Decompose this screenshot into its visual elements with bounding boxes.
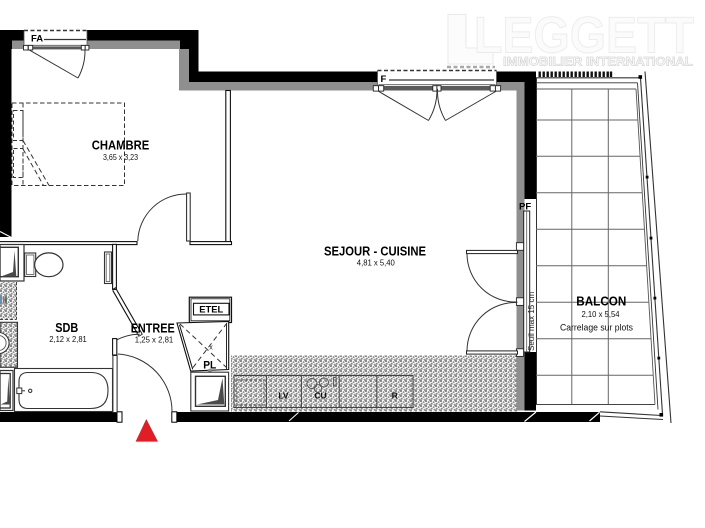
svg-text:ENTREE: ENTREE [131,322,175,336]
svg-text:LV: LV [278,391,289,401]
svg-text:x: x [209,345,213,352]
svg-text:CHAMBRE: CHAMBRE [92,139,150,153]
svg-text:Carrelage sur plots: Carrelage sur plots [560,323,634,333]
svg-text:3,65 x 3,23: 3,65 x 3,23 [103,152,138,162]
svg-text:Seuil max 15 cm: Seuil max 15 cm [527,292,536,351]
svg-text:IMMOBILIER INTERNATIONAL: IMMOBILIER INTERNATIONAL [503,57,693,69]
svg-text:BALCON: BALCON [576,295,626,309]
svg-text:ETEL: ETEL [199,305,223,316]
svg-text:R: R [392,391,398,401]
svg-text:1,25 x 2,81: 1,25 x 2,81 [135,335,174,345]
svg-text:PF: PF [519,202,531,213]
svg-text:2,12 x 2,81: 2,12 x 2,81 [49,334,87,344]
svg-text:SEJOUR - CUISINE: SEJOUR - CUISINE [324,244,426,258]
svg-text:F: F [381,74,387,85]
svg-text:LEGGETT: LEGGETT [474,7,694,64]
svg-text:FA: FA [31,34,43,45]
svg-text:4,81 x 5,40: 4,81 x 5,40 [357,258,395,268]
svg-text:2,10 x 5,54: 2,10 x 5,54 [582,309,620,319]
